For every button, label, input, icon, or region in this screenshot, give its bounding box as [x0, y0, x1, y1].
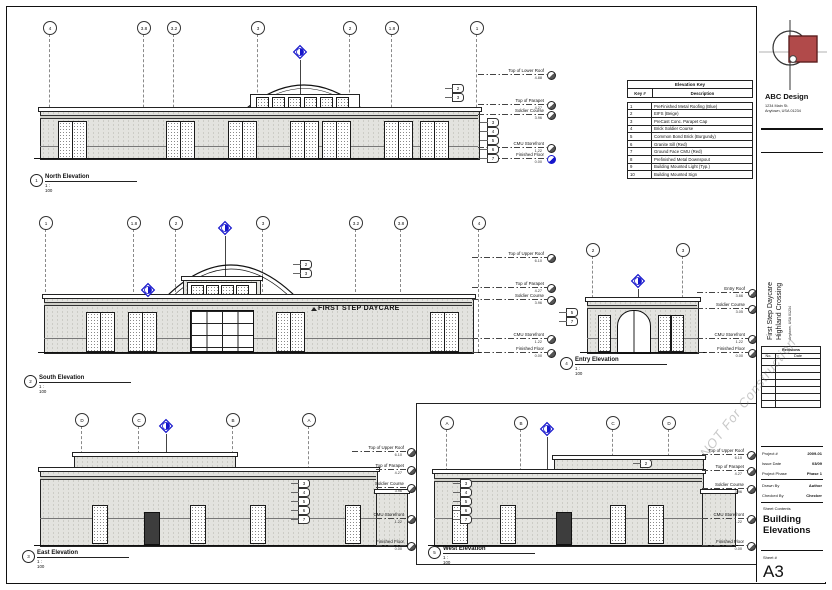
level-annotation: Top of Upper Roof6.10 [472, 249, 556, 263]
parapet-cap [42, 294, 476, 299]
view-scale: 1 : 100 [39, 384, 46, 394]
drawing-sheet: NOT For Construction 4 3.8 3.2 3 2 1.8 1 [0, 0, 832, 590]
view-scale: 1 : 100 [37, 559, 44, 569]
grid-bubble: 2 [586, 243, 600, 257]
view-number: 5 [428, 546, 441, 559]
key-row: 9Building Mounted Light (Typ.) [627, 164, 753, 172]
grid-bubble: B [226, 413, 240, 427]
keynote-tag: 4 [460, 488, 472, 497]
level-annotation: Entry Roof3.66 [697, 284, 757, 298]
section-marker-icon[interactable] [158, 418, 174, 434]
section-marker-icon[interactable] [217, 220, 233, 236]
cmu-line [40, 518, 376, 519]
upper-parapet-cap [72, 452, 238, 457]
keynote-tag: 2 [300, 260, 312, 269]
grid-label: 3 [682, 248, 685, 253]
soldier-course-band [40, 115, 478, 119]
window [250, 505, 266, 544]
grid-bubble: A [440, 416, 454, 430]
field-row: Project #2009-01 [762, 451, 822, 456]
firm-name: ABC Design [765, 92, 808, 101]
level-annotation: Soldier Course3.96 [702, 480, 756, 494]
window [190, 505, 206, 544]
window [242, 121, 257, 159]
grid-label: 4 [478, 221, 481, 226]
grid-label: 1 [45, 221, 48, 226]
upper-parapet-cap [552, 455, 706, 460]
ground-line [34, 158, 484, 159]
key-row: 5Common Bond Brick (Burgundy) [627, 133, 753, 141]
window [72, 121, 87, 159]
level-annotation: Top of Lower Roof4.88 [478, 66, 556, 80]
wall [40, 470, 378, 547]
grid-bubble: 1.8 [385, 21, 399, 35]
view-title-text: North Elevation [45, 174, 137, 182]
window [420, 121, 435, 159]
key-row: 10Building Mounted Sign [627, 171, 753, 179]
grid-label: B [231, 418, 234, 423]
grid-bubble: 3.2 [349, 216, 363, 230]
grid-label: A [307, 418, 310, 423]
grid-label: 3.8 [141, 26, 147, 31]
spot-elevation-icon [547, 349, 556, 358]
revisions-table: Revisions No. Date [761, 346, 821, 408]
grid-bubble: 3 [676, 243, 690, 257]
revision-row [761, 359, 821, 366]
grid-label: D [80, 418, 83, 423]
spot-elevation-icon [407, 484, 416, 493]
door [556, 512, 572, 545]
spot-elevation-icon [547, 71, 556, 80]
spot-elevation-icon [747, 451, 756, 460]
level-annotation: Soldier Course3.05 [697, 300, 757, 314]
spot-elevation-icon [407, 466, 416, 475]
window [598, 315, 611, 352]
grid-bubble: 3.2 [167, 21, 181, 35]
parapet-cap [432, 469, 706, 474]
window [648, 505, 664, 544]
grid-bubble: B [514, 416, 528, 430]
soldier-course-band [40, 476, 376, 480]
grid-bubble: D [75, 413, 89, 427]
arched-entry-door [617, 310, 651, 354]
grid-label: 1.8 [389, 26, 395, 31]
level-annotation: Top of Parapet4.27 [376, 461, 416, 475]
tower-parapet-cap [181, 276, 263, 281]
window [86, 312, 101, 352]
grid-label: A [445, 421, 448, 426]
soldier-course-band [44, 302, 472, 306]
revision-row [761, 401, 821, 408]
level-annotation: Soldier Course3.96 [472, 291, 556, 305]
firm-logo-icon [759, 14, 827, 94]
window [500, 505, 516, 544]
level-annotation: Finished Floor0.00 [376, 537, 416, 551]
keynote-tag: 6 [298, 506, 310, 515]
grid-label: 3.2 [171, 26, 177, 31]
keynote-tag: 5 [566, 308, 578, 317]
key-row: 6Granite Sill (Red) [627, 141, 753, 149]
key-row: 2EIFS (Beige) [627, 110, 753, 118]
window [398, 121, 413, 159]
parapet-cap [38, 467, 380, 472]
keynote-tag: 7 [487, 154, 499, 163]
level-annotation: CMU Storefront1.22 [697, 330, 757, 344]
grid-label: 1 [476, 26, 479, 31]
grid-bubble: 4 [472, 216, 486, 230]
revisions-title: Revisions [761, 346, 821, 354]
grid-bubble: C [132, 413, 146, 427]
level-annotation: Finished Floor0.00 [702, 537, 756, 551]
section-marker-icon[interactable] [539, 421, 555, 437]
grid-bubble: A [302, 413, 316, 427]
window [166, 121, 181, 159]
project-name-block: First Step Daycare Highland Crossing Any… [767, 236, 821, 340]
section-line [547, 437, 548, 472]
grid-label: 3 [257, 26, 260, 31]
spot-elevation-icon [747, 485, 756, 494]
ground-line [34, 545, 414, 546]
firm-address-line2: Anytown, USA 01234 [765, 109, 801, 114]
desc-col-header: Description [653, 89, 752, 96]
keynote-tag: 7 [460, 515, 472, 524]
keynote-tag: 5 [298, 497, 310, 506]
spot-elevation-icon [747, 467, 756, 476]
keynote-tag: 3 [460, 479, 472, 488]
keynote-tag: 5 [460, 497, 472, 506]
grid-bubble: 4 [43, 21, 57, 35]
project-name-line1: First Step Daycare [767, 236, 776, 340]
window [430, 312, 445, 352]
grid-bubble: 1.8 [127, 216, 141, 230]
sheet-number-label: Sheet # [763, 555, 777, 560]
level-annotation: Finished Floor0.00 [697, 344, 757, 358]
grid-label: 3.2 [353, 221, 359, 226]
firm-address: 1234 Main St. Anytown, USA 01234 [765, 104, 801, 115]
view-title-text: East Elevation [37, 550, 129, 558]
spot-elevation-icon [547, 335, 556, 344]
grid-bubble: 3.8 [394, 216, 408, 230]
grid-bubble: 1 [39, 216, 53, 230]
window [671, 315, 684, 352]
window [658, 315, 671, 352]
storefront-entry [190, 310, 254, 352]
keynote-tag: 3 [487, 118, 499, 127]
window [180, 121, 195, 159]
key-row: 8Prefinished Metal Downspout [627, 156, 753, 164]
door [144, 512, 160, 545]
window [128, 312, 143, 352]
grid-label: B [519, 421, 522, 426]
revisions-col-date: Date [776, 354, 820, 358]
keynote-tag: 7 [298, 515, 310, 524]
level-annotation: Top of Upper Roof6.10 [702, 446, 756, 460]
level-annotation: Finished Floor0.00 [472, 344, 556, 358]
window [345, 505, 361, 544]
view-scale: 1 : 100 [443, 555, 450, 565]
keynote-tag: 6 [487, 145, 499, 154]
sheet-contents-label: Sheet Contents [763, 506, 791, 511]
spot-elevation-icon [547, 111, 556, 120]
revision-row [761, 380, 821, 387]
key-row: 3PreCast Conc. Parapet Cap [627, 118, 753, 126]
field-row: Issue Date03/09 [762, 461, 822, 466]
window [322, 121, 337, 159]
grid-label: 3.8 [398, 221, 404, 226]
keynote-tag: 5 [487, 136, 499, 145]
grid-label: 1.8 [131, 221, 137, 226]
section-marker-icon[interactable] [630, 273, 646, 289]
view-title-text: South Elevation [39, 375, 131, 383]
parapet-cap [38, 107, 482, 112]
section-marker-icon[interactable] [292, 44, 308, 60]
title-block: ABC Design 1234 Main St. Anytown, USA 01… [756, 6, 827, 582]
grid-label: 2 [175, 221, 178, 226]
keynote-tag: 7 [566, 317, 578, 326]
soldier-course-band [587, 305, 697, 309]
grid-label: D [667, 421, 670, 426]
level-annotation: Top of Parapet4.27 [702, 462, 756, 476]
key-row: 1PreFinished Metal Roofing (Blue) [627, 102, 753, 111]
sheet-contents: Building Elevations [763, 514, 821, 537]
keynote-tag: 2 [640, 459, 652, 468]
key-row: 4Brick Soldier Course [627, 126, 753, 134]
key-row: 7Ground Face CMU (Red) [627, 148, 753, 156]
grid-bubble: 3 [251, 21, 265, 35]
level-annotation: CMU Storefront1.22 [702, 510, 756, 524]
project-address: Anytown, USA 01234 [788, 236, 792, 340]
window [58, 121, 73, 159]
field-row: Project PhasePhase 1 [762, 471, 822, 476]
window [290, 121, 305, 159]
project-name-line2: Highland Crossing [776, 236, 785, 340]
key-table-header: Key # Description [627, 89, 753, 97]
keynote-tag: 6 [460, 506, 472, 515]
view-number: 3 [22, 550, 35, 563]
keynote-tag: 2 [452, 84, 464, 93]
grid-label: C [611, 421, 614, 426]
sheet-number: A3 [763, 562, 784, 582]
grid-label: 2 [592, 248, 595, 253]
window [92, 505, 108, 544]
spot-elevation-icon [747, 542, 756, 551]
window [610, 505, 626, 544]
window [384, 121, 399, 159]
level-annotation: CMU Storefront1.22 [376, 510, 416, 524]
field-row: Checked ByChecker [762, 493, 822, 498]
field-row: Drawn ByAuthor [762, 483, 822, 488]
window [290, 312, 305, 352]
grid-label: 3 [262, 221, 265, 226]
revision-row [761, 387, 821, 394]
grid-label: 4 [49, 26, 52, 31]
parapet-cap [585, 297, 701, 302]
window [304, 121, 319, 159]
soldier-course-band [434, 478, 702, 482]
grid-bubble: 1 [470, 21, 484, 35]
key-table-title: Elevation Key [627, 80, 753, 89]
level-annotation: Top of Upper Roof6.10 [352, 443, 416, 457]
keynote-tag: 3 [452, 93, 464, 102]
window [336, 121, 351, 159]
view-title-text: Entry Elevation [575, 357, 667, 365]
keynote-tag: 4 [487, 127, 499, 136]
elevation-key-table: Elevation Key Key # Description 1PreFini… [627, 80, 753, 179]
spot-elevation-icon [407, 448, 416, 457]
level-annotation: CMU Storefront1.22 [472, 330, 556, 344]
level-annotation: Soldier Course3.96 [376, 479, 416, 493]
grid-bubble: 2 [169, 216, 183, 230]
grid-bubble: D [662, 416, 676, 430]
spot-elevation-icon [747, 515, 756, 524]
grid-label: 2 [349, 26, 352, 31]
window [444, 312, 459, 352]
grid-label: C [137, 418, 140, 423]
spot-elevation-icon [407, 542, 416, 551]
grid-bubble: C [606, 416, 620, 430]
spot-elevation-icon [547, 254, 556, 263]
view-scale: 1 : 100 [575, 366, 582, 376]
grid-bubble: 3 [256, 216, 270, 230]
view-scale: 1 : 100 [45, 183, 52, 193]
view-title-text: West Elevation [443, 546, 535, 554]
revision-row [761, 373, 821, 380]
building-sign: FIRST STEP DAYCARE [318, 305, 400, 312]
window [434, 121, 449, 159]
view-number: 4 [560, 357, 573, 370]
view-number: 1 [30, 174, 43, 187]
view-number: 2 [24, 375, 37, 388]
keynote-tag: 3 [298, 479, 310, 488]
ground-line [38, 352, 482, 353]
revisions-col-no: No. [762, 354, 776, 358]
grid-bubble: 3.8 [137, 21, 151, 35]
key-col-header: Key # [628, 89, 653, 96]
window [228, 121, 243, 159]
spot-elevation-icon [547, 296, 556, 305]
window [142, 312, 157, 352]
spot-elevation-icon [407, 515, 416, 524]
spot-elevation-icon [547, 155, 556, 164]
revision-row [761, 366, 821, 373]
elevation-marker-icon[interactable] [140, 282, 156, 298]
revision-row [761, 394, 821, 401]
grid-bubble: 2 [343, 21, 357, 35]
ground-line [580, 352, 706, 353]
keynote-tag: 4 [298, 488, 310, 497]
window [100, 312, 115, 352]
window [276, 312, 291, 352]
keynote-tag: 3 [300, 269, 312, 278]
